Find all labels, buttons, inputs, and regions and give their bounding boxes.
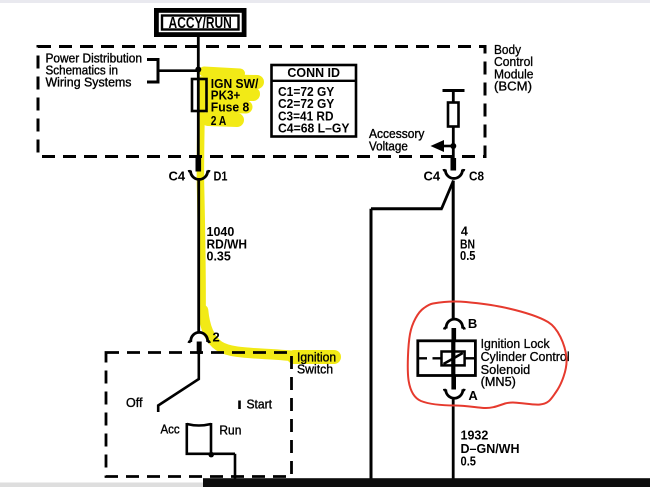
svg-text:C4: C4 — [169, 168, 186, 183]
svg-text:Ignition Lock: Ignition Lock — [481, 337, 551, 351]
svg-text:0.5: 0.5 — [461, 455, 477, 469]
svg-text:C8: C8 — [469, 168, 484, 183]
svg-text:(MN5): (MN5) — [481, 375, 516, 389]
svg-text:A: A — [468, 388, 478, 403]
svg-text:Wiring Systems: Wiring Systems — [46, 76, 132, 90]
svg-text:2: 2 — [213, 330, 220, 345]
svg-text:Off: Off — [126, 396, 143, 410]
svg-text:Run: Run — [219, 424, 241, 438]
svg-text:D1: D1 — [214, 168, 228, 183]
svg-text:Switch: Switch — [297, 363, 333, 377]
svg-text:Acc: Acc — [161, 423, 180, 437]
svg-text:Start: Start — [247, 397, 273, 411]
svg-text:CONN ID: CONN ID — [287, 65, 340, 80]
svg-text:0.35: 0.35 — [207, 250, 231, 264]
svg-text:B: B — [468, 316, 477, 331]
svg-text:Voltage: Voltage — [369, 139, 408, 153]
svg-text:C4: C4 — [424, 168, 441, 183]
svg-text:0.5: 0.5 — [460, 249, 476, 263]
svg-text:1932: 1932 — [461, 429, 489, 443]
svg-text:Fuse 8: Fuse 8 — [211, 101, 250, 115]
svg-text:2 A: 2 A — [211, 114, 227, 128]
svg-text:(BCM): (BCM) — [494, 80, 532, 94]
svg-text:C4=68 L–GY: C4=68 L–GY — [278, 122, 350, 136]
svg-text:Cylinder Control: Cylinder Control — [481, 350, 570, 364]
svg-text:ACCY/RUN: ACCY/RUN — [169, 13, 232, 31]
